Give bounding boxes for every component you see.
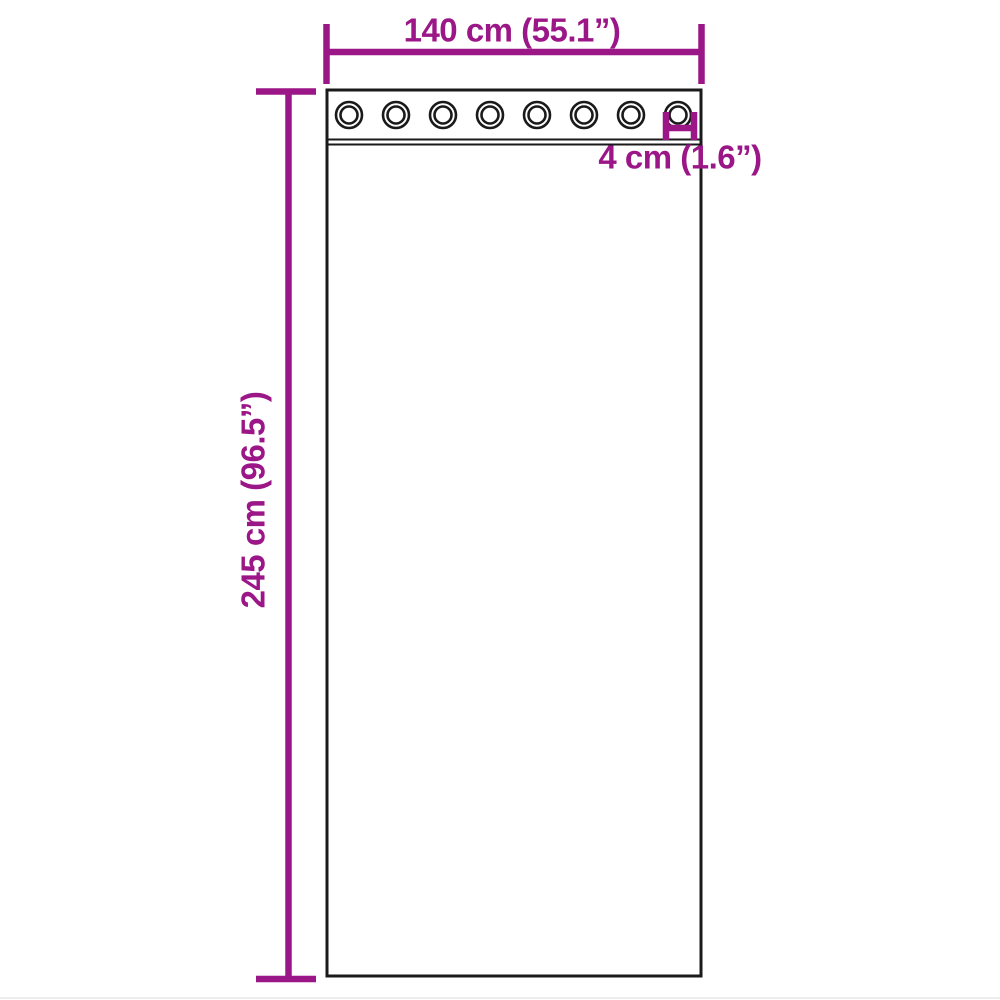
dimension-diagram: 140 cm (55.1”) 245 cm (96.5”) 4 cm (1.6”… bbox=[0, 0, 1000, 1000]
dimension-diagram-canvas: 140 cm (55.1”) 245 cm (96.5”) 4 cm (1.6”… bbox=[0, 0, 1000, 1000]
curtain-panel bbox=[327, 90, 701, 976]
width-dimension-label: 140 cm (55.1”) bbox=[404, 12, 621, 49]
height-dimension-label: 245 cm (96.5”) bbox=[235, 392, 272, 609]
width-dimension: 140 cm (55.1”) bbox=[327, 12, 702, 85]
height-dimension: 245 cm (96.5”) bbox=[235, 90, 317, 979]
curtain-outline bbox=[327, 90, 701, 976]
grommet-dimension-label: 4 cm (1.6”) bbox=[598, 139, 761, 176]
